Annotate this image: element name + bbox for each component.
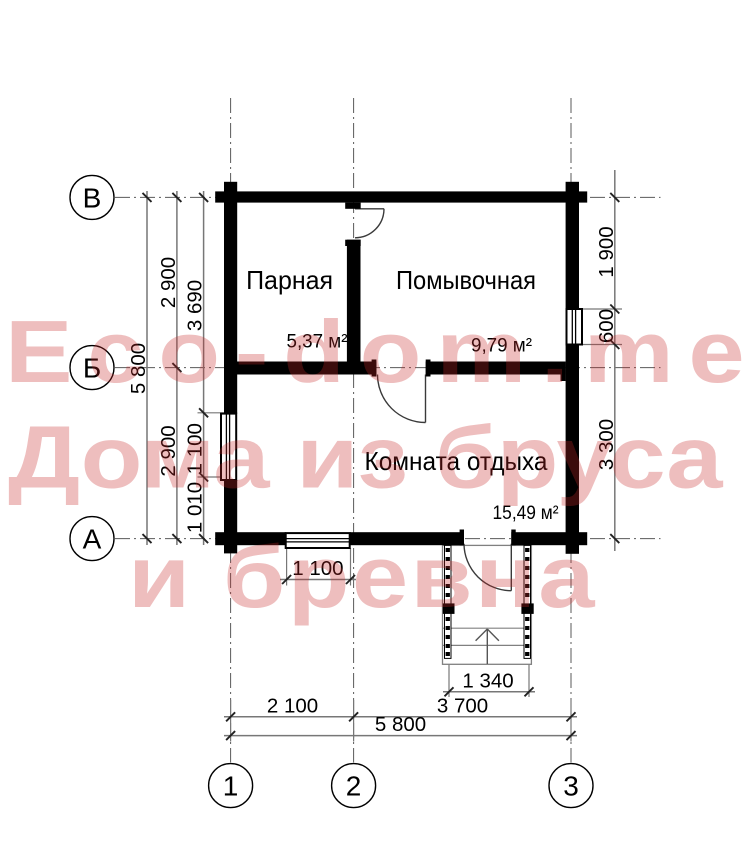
- svg-text:3: 3: [563, 771, 579, 802]
- svg-text:2 900: 2 900: [157, 257, 180, 308]
- svg-text:и бревна: и бревна: [128, 528, 597, 626]
- svg-text:1: 1: [223, 771, 239, 802]
- svg-text:Дома из бруса: Дома из бруса: [8, 409, 724, 507]
- svg-text:А: А: [83, 524, 102, 555]
- svg-text:2: 2: [346, 771, 362, 802]
- svg-text:2 100: 2 100: [267, 694, 318, 717]
- svg-text:1 340: 1 340: [462, 669, 513, 692]
- svg-text:Парная: Парная: [246, 265, 333, 295]
- svg-text:Помывочная: Помывочная: [396, 265, 536, 295]
- svg-text:3 700: 3 700: [437, 694, 488, 717]
- svg-text:В: В: [83, 182, 102, 213]
- svg-text:5 800: 5 800: [375, 713, 426, 736]
- svg-text:1 900: 1 900: [595, 226, 618, 277]
- svg-text:Eco-dom.me: Eco-dom.me: [5, 303, 750, 401]
